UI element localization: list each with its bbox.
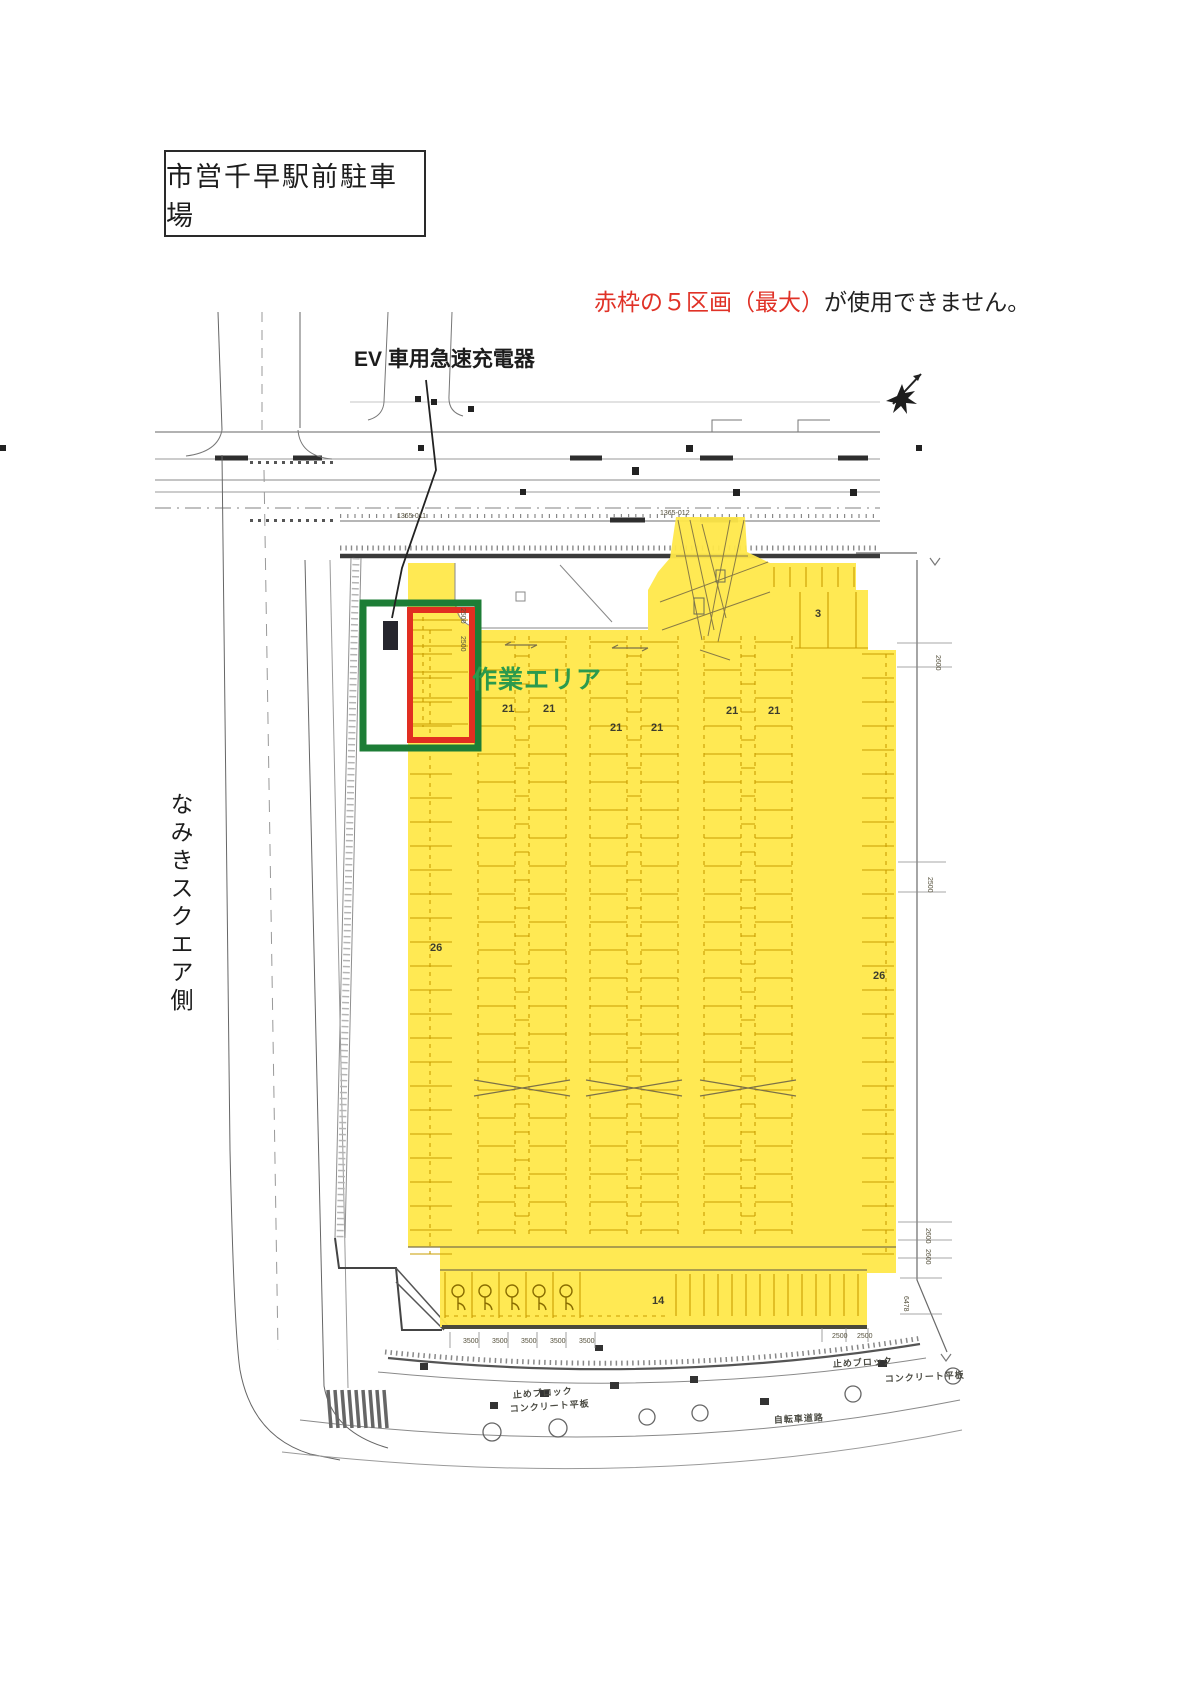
count-label: 21	[502, 703, 514, 715]
notice-black-part: が使用できません。	[824, 289, 1030, 315]
dim-label: 3500	[492, 1338, 508, 1345]
dim-label: 3500	[579, 1338, 595, 1345]
dim-label: 2500	[832, 1333, 848, 1340]
count-label: 3	[815, 608, 821, 620]
scanned-document-page: 3212121212121262614 25002500260025002600…	[0, 0, 1200, 1696]
dim-label: 2600	[934, 655, 941, 671]
building-notch	[455, 563, 648, 628]
street-side-label: なみきスクエア側	[163, 792, 197, 1016]
road-label: コンクリート平板	[885, 1369, 965, 1384]
road-label: コンクリート平板	[509, 1397, 590, 1414]
dim-label: 2500	[459, 608, 466, 624]
dim-label: 3500	[463, 1338, 479, 1345]
count-label: 21	[651, 722, 663, 734]
dim-label: 1365-011	[397, 513, 426, 520]
road-label: 止めブロック	[512, 1385, 573, 1400]
count-label: 21	[726, 705, 738, 717]
title-box: 市営千早駅前駐車場	[164, 150, 426, 237]
notice-red-part: 赤枠の５区画（最大）	[594, 289, 824, 315]
bottom-road	[282, 1327, 962, 1469]
top-road	[0, 402, 922, 521]
notice-text: 赤枠の５区画（最大）が使用できません。	[594, 283, 1030, 317]
count-label: 21	[768, 705, 780, 717]
count-label: 26	[430, 942, 442, 954]
dim-label: 6478	[902, 1296, 909, 1312]
count-label: 21	[610, 722, 622, 734]
dim-label: 1365-012	[660, 510, 690, 517]
work-area-label: 作業エリア	[472, 660, 602, 696]
count-label: 21	[543, 703, 555, 715]
north-arrow-icon	[886, 374, 921, 414]
dim-label: 3500	[521, 1338, 537, 1345]
count-label: 14	[652, 1295, 665, 1307]
ev-charger-label: EV 車用急速充電器	[354, 343, 535, 373]
count-label: 26	[873, 970, 885, 982]
dim-label: 2500	[459, 636, 466, 652]
dim-label: 3500	[550, 1338, 566, 1345]
dim-label: 2500	[857, 1333, 873, 1340]
dim-label: 2500	[926, 877, 933, 893]
dim-label: 2600	[924, 1249, 931, 1265]
page-title: 市営千早駅前駐車場	[166, 155, 424, 233]
dim-label: 2600	[924, 1228, 931, 1244]
ev-charger-box	[383, 621, 398, 650]
